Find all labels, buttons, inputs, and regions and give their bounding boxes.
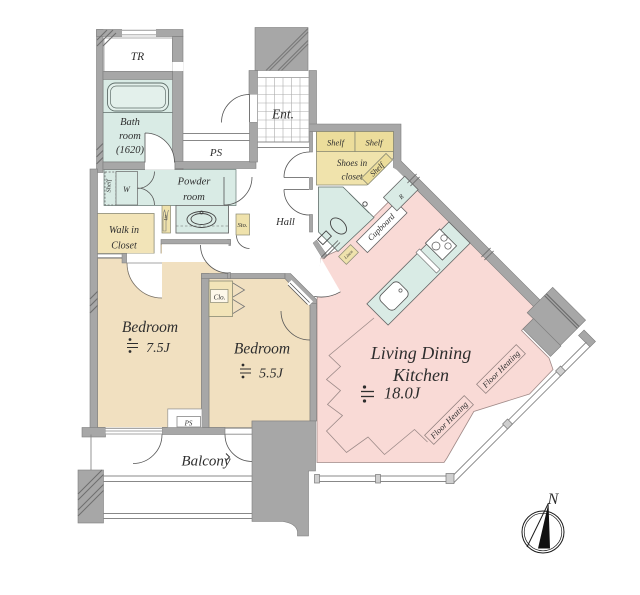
svg-text:Clo.: Clo. [214,294,226,302]
svg-text:closet: closet [342,172,363,182]
svg-text:Closet: Closet [111,241,137,252]
svg-text:room: room [183,192,205,203]
svg-text:Balcony: Balcony [181,454,230,470]
svg-text:(1620): (1620) [116,145,144,156]
svg-text:TR: TR [131,51,144,63]
svg-text:Hall: Hall [275,217,295,228]
svg-text:Ent.: Ent. [271,107,294,122]
svg-text:room: room [119,131,141,142]
svg-text:Shelf: Shelf [366,138,385,148]
svg-text:Bedroom: Bedroom [234,341,290,358]
svg-text:PS: PS [209,147,223,159]
svg-text:Sto.: Sto. [238,222,248,229]
svg-text:Bath: Bath [120,117,140,128]
svg-text:18.0J: 18.0J [384,384,421,403]
svg-text:Powder: Powder [177,177,212,188]
svg-text:Shelf: Shelf [106,178,113,192]
svg-text:Walk in: Walk in [109,225,139,236]
svg-text:Lin: Lin [163,214,168,222]
svg-text:Living Dining: Living Dining [370,343,472,363]
svg-text:N: N [547,491,560,508]
svg-text:Shelf: Shelf [327,138,346,148]
svg-text:PS: PS [184,420,193,428]
svg-text:Bedroom: Bedroom [122,319,178,336]
svg-text:7.5J: 7.5J [146,341,171,356]
svg-text:Shoes in: Shoes in [337,158,368,168]
svg-text:Kitchen: Kitchen [392,365,449,385]
svg-text:5.5J: 5.5J [259,367,284,382]
